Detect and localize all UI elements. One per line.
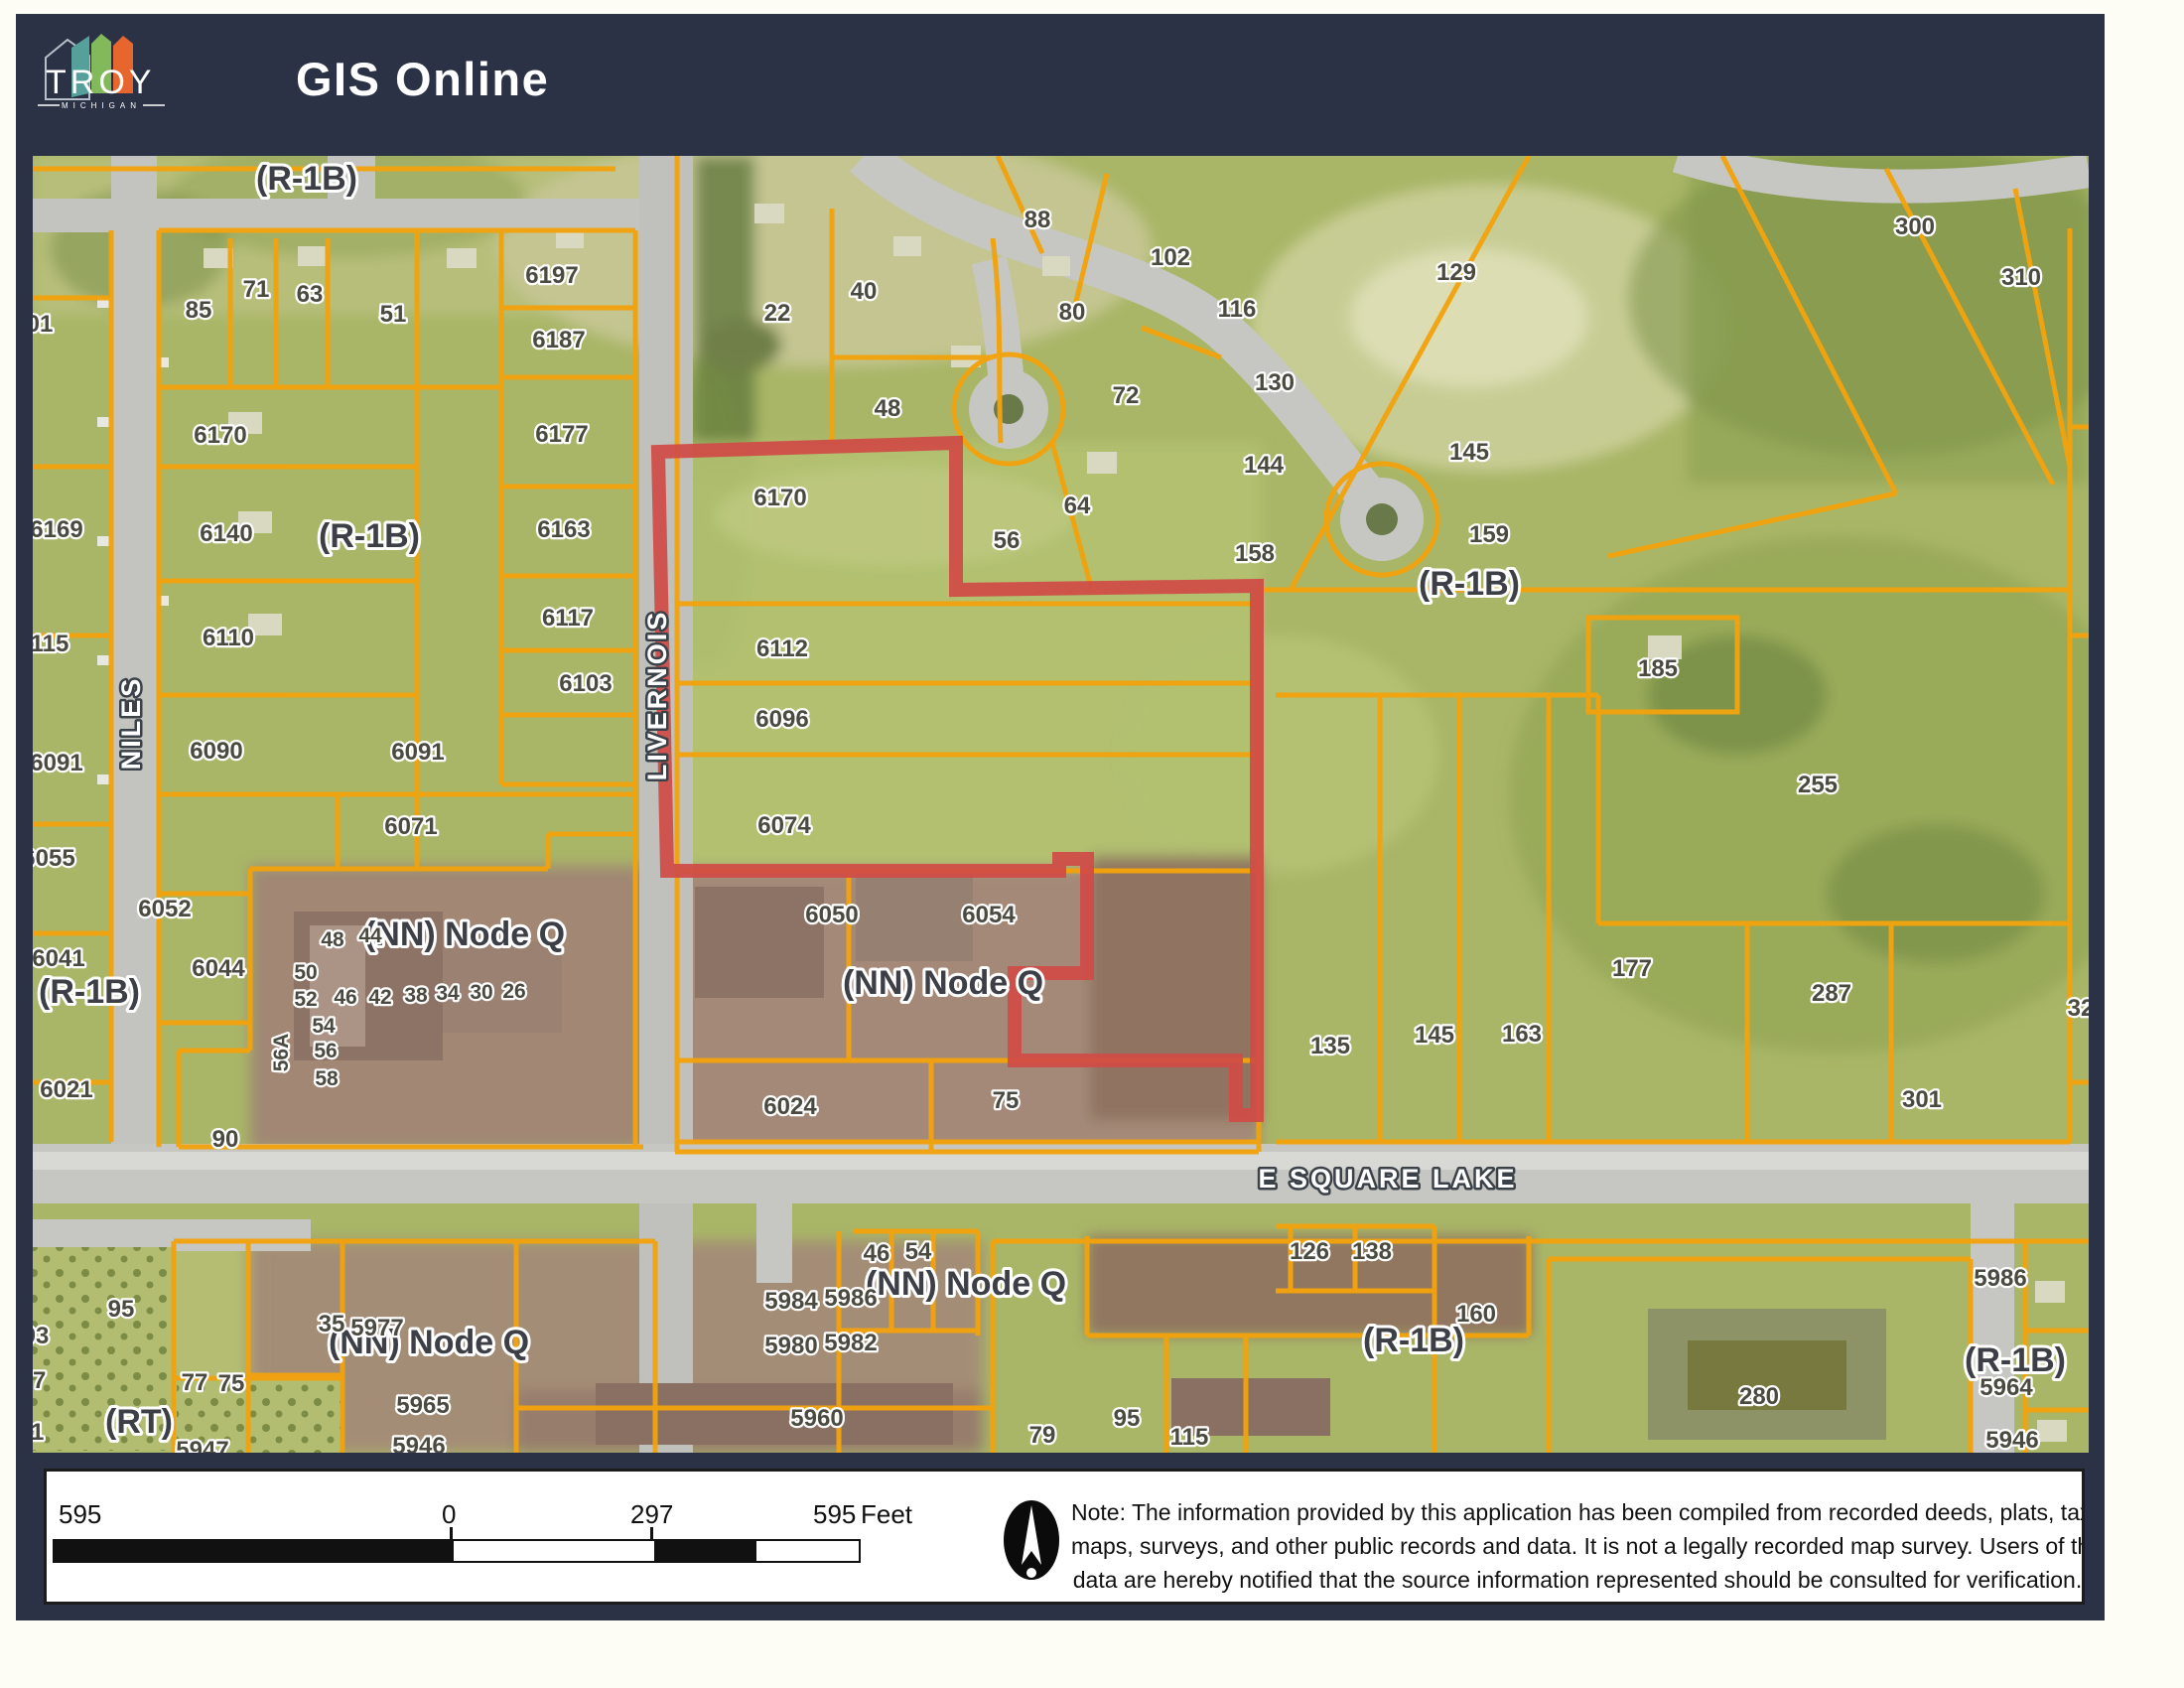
parcel-label: 90 (212, 1126, 239, 1153)
parcel-label: 95 (108, 1296, 135, 1323)
scalebar-tick (650, 1527, 653, 1539)
parcel-label: 163 (1502, 1021, 1542, 1048)
parcel-label: 56 (314, 1040, 337, 1062)
street-label: LIVERNOIS (642, 610, 672, 781)
parcel-label: 6052 (138, 896, 191, 922)
logo-city-text: TROY (46, 64, 155, 101)
disclaimer-line: maps, surveys, and other public records … (1071, 1529, 2084, 1563)
zone-label: (NN) Node Q (364, 915, 565, 953)
zone-label: (R-1B) (1419, 565, 1520, 603)
parcel-label: 158 (1235, 540, 1275, 567)
parcel-label: 135 (1310, 1033, 1350, 1059)
parcel-label: 130 (1255, 369, 1295, 396)
parcel-label: 6177 (535, 421, 588, 448)
parcel-label: 145 (1415, 1022, 1454, 1049)
aerial-map-canvas: (R-1B)(R-1B)(R-1B)(R-1B)(R-1B)(R-1B)(NN)… (33, 156, 2089, 1453)
parcel-label: 35 (319, 1311, 345, 1337)
parcel-label: 61 (33, 1419, 44, 1446)
parcel-label: 71 (243, 276, 270, 303)
parcel-label: 255 (1798, 772, 1838, 798)
parcel-label: 79 (1029, 1422, 1056, 1449)
parcel-label: 54 (905, 1238, 932, 1265)
parcel-label: 6197 (525, 262, 578, 289)
disclaimer-note: Note: The information provided by this a… (1071, 1495, 2084, 1597)
zone-label: (NN) Node Q (843, 964, 1043, 1002)
page: TROY MICHIGAN GIS Online (0, 0, 2184, 1688)
app-title: GIS Online (296, 52, 549, 106)
parcel-label: 75 (218, 1370, 245, 1397)
parcel-label: 6140 (200, 520, 252, 547)
parcel-label: 6054 (962, 902, 1016, 928)
parcel-label: 6071 (384, 813, 437, 840)
logo-state-text: MICHIGAN (62, 101, 141, 110)
parcel-label: 44 (358, 924, 382, 947)
parcel-label: 177 (1612, 955, 1652, 982)
parcel-label: 5986 (824, 1285, 877, 1312)
parcel-label: 5946 (1985, 1427, 2038, 1453)
parcel-label: 5965 (396, 1392, 449, 1419)
parcel-label: 138 (1352, 1238, 1392, 1265)
parcel-label: 300 (1895, 213, 1935, 240)
parcel-label: 115 (1170, 1424, 1209, 1451)
parcel-label: 6024 (763, 1093, 817, 1120)
parcel-label: 6117 (542, 605, 594, 632)
scalebar-mid-value: 297 (630, 1499, 673, 1530)
parcel-label: 6170 (753, 485, 806, 511)
parcel-label: 56A (270, 1034, 293, 1072)
parcel-label: 6041 (33, 945, 85, 972)
scalebar-left-value: 595 (59, 1499, 101, 1530)
parcel-label: 54 (312, 1015, 336, 1038)
parcel-label: 56 (994, 527, 1021, 554)
parcel-label: 01 (33, 311, 53, 338)
parcel-label: 6090 (190, 738, 242, 765)
parcel-label: 6074 (757, 812, 811, 839)
scalebar-right-value: 595 (813, 1499, 856, 1530)
parcel-label: 50 (294, 961, 317, 984)
parcel-label: 75 (993, 1087, 1020, 1114)
parcel-label: 48 (321, 928, 344, 951)
parcel-label: 38 (404, 984, 428, 1007)
parcel-label: 310 (2001, 264, 2041, 291)
zone-label: (R-1B) (319, 517, 420, 555)
parcel-label: 6103 (559, 670, 612, 697)
parcel-label: 5977 (350, 1315, 403, 1341)
parcel-label: 5964 (1979, 1374, 2033, 1401)
zone-label: (R-1B) (39, 973, 140, 1011)
parcel-label: 77 (33, 1367, 46, 1394)
parcel-label: 6044 (192, 955, 245, 982)
scale-bar (53, 1539, 861, 1563)
parcel-label: 46 (334, 986, 356, 1009)
parcel-label: 185 (1638, 655, 1678, 682)
parcel-label: 5986 (1974, 1265, 2026, 1292)
parcel-label: 5960 (790, 1405, 843, 1432)
scalebar-tick (450, 1527, 453, 1539)
parcel-label: 102 (1151, 244, 1190, 271)
scalebar-unit: Feet (861, 1499, 912, 1530)
parcel-label: 126 (1290, 1238, 1329, 1265)
parcel-label: 5984 (764, 1288, 818, 1315)
parcel-label: 58 (315, 1067, 339, 1090)
scalebar-zero-value: 0 (442, 1499, 456, 1530)
parcel-label: 93 (33, 1323, 49, 1349)
parcel-label: 301 (1902, 1086, 1942, 1113)
parcel-label: 145 (1449, 439, 1489, 466)
parcel-label: 48 (875, 395, 901, 422)
parcel-label: 5980 (764, 1333, 817, 1359)
footer-panel: 595 0 297 595 Feet Note: The information… (44, 1469, 2085, 1605)
parcel-label: 6187 (532, 327, 585, 353)
parcel-label: 6169 (33, 516, 83, 543)
parcel-label: 88 (1024, 207, 1051, 233)
parcel-label: 34 (436, 982, 460, 1005)
parcel-label: 160 (1456, 1301, 1496, 1328)
map-viewport[interactable]: (R-1B)(R-1B)(R-1B)(R-1B)(R-1B)(R-1B)(NN)… (33, 156, 2089, 1453)
parcel-label: 159 (1469, 521, 1509, 548)
parcel-label: 42 (368, 986, 391, 1009)
parcel-label: 26 (502, 980, 525, 1003)
parcel-label: 5982 (824, 1330, 877, 1356)
parcel-label: 115 (33, 631, 68, 657)
parcel-label: 51 (380, 301, 407, 328)
parcel-label: 6021 (40, 1076, 92, 1103)
street-label: NILES (116, 676, 146, 771)
parcel-label: 280 (1739, 1383, 1779, 1410)
parcel-label: 6050 (805, 902, 858, 928)
parcel-label: 95 (1114, 1405, 1141, 1432)
parcel-label: 6096 (755, 706, 808, 733)
parcel-label: 63 (297, 281, 324, 308)
parcel-label: 287 (1812, 980, 1851, 1007)
parcel-label: 72 (1113, 382, 1140, 409)
parcel-label: 40 (851, 278, 878, 305)
zone-label: (NN) Node Q (866, 1265, 1066, 1303)
parcel-label: 6163 (537, 516, 590, 543)
parcel-label: 52 (294, 988, 317, 1011)
parcel-label: 32 (2068, 995, 2089, 1022)
parcel-label: 6091 (33, 750, 83, 776)
parcel-label: 6112 (756, 635, 808, 662)
parcel-label: 6091 (391, 739, 444, 766)
parcel-label: 64 (1064, 492, 1091, 519)
street-label: E SQUARE LAKE (1258, 1164, 1517, 1194)
parcel-label: 144 (1244, 452, 1285, 479)
parcel-label: 116 (1218, 296, 1257, 323)
parcel-label: 6110 (203, 625, 254, 651)
parcel-label: 80 (1059, 299, 1086, 326)
zone-label: (RT) (105, 1403, 173, 1441)
parcel-label: 46 (864, 1240, 890, 1267)
troy-city-logo: TROY MICHIGAN (36, 24, 167, 151)
north-arrow-icon (992, 1493, 1071, 1588)
zone-label: (R-1B) (256, 160, 357, 198)
parcel-label: 85 (186, 297, 212, 324)
disclaimer-line: data are hereby notified that the source… (1071, 1563, 2084, 1597)
parcel-label: 6170 (194, 422, 246, 449)
parcel-label: 5946 (392, 1433, 445, 1453)
parcel-label: 30 (470, 981, 492, 1004)
disclaimer-line: Note: The information provided by this a… (1071, 1495, 2084, 1529)
parcel-label: 129 (1436, 259, 1476, 286)
parcel-label: 77 (182, 1369, 208, 1396)
parcel-label: 5947 (176, 1437, 228, 1453)
parcel-label: 22 (764, 300, 791, 327)
zone-label: (R-1B) (1363, 1322, 1464, 1359)
parcel-label: 6055 (33, 845, 75, 872)
